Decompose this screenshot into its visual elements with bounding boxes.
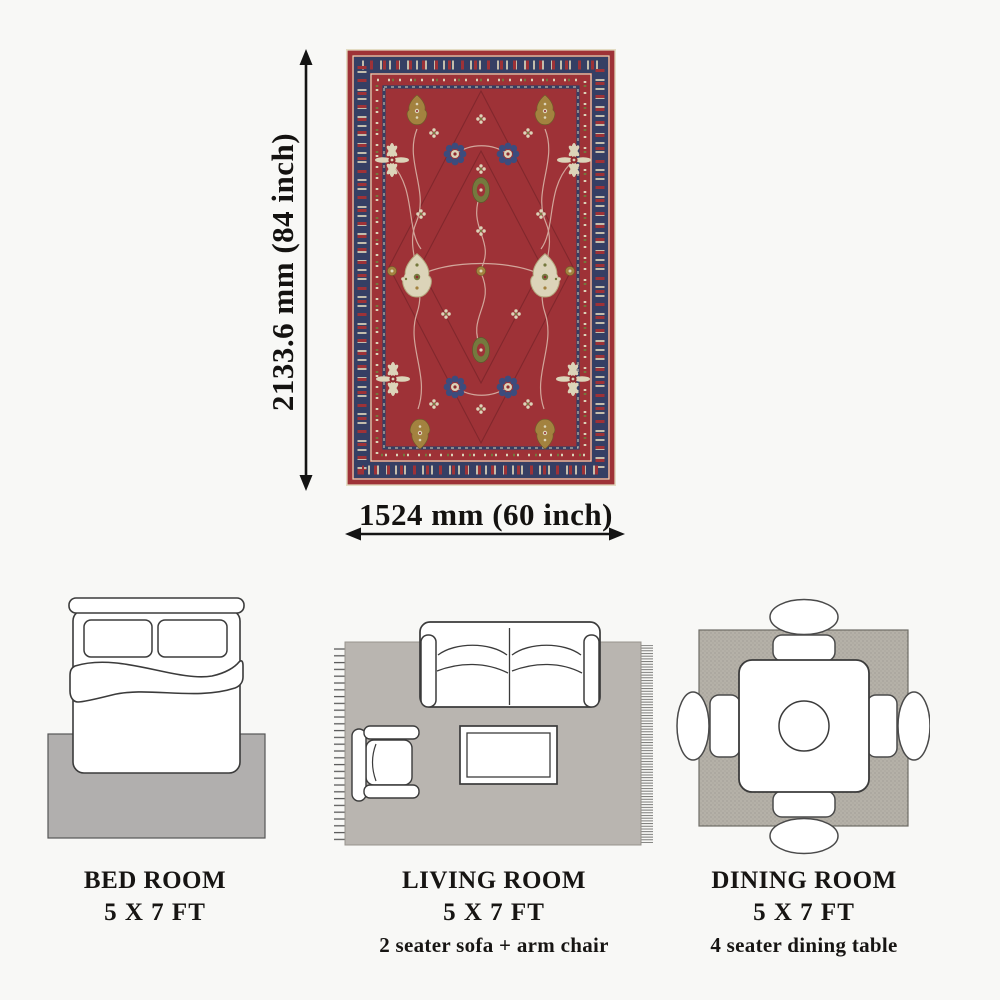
- armchair-icon: [352, 726, 419, 801]
- sofa-icon: [420, 622, 600, 707]
- rug-image: [346, 49, 616, 486]
- bedroom-label: BED ROOM 5 X 7 FT: [0, 866, 310, 928]
- canvas: 2133.6 mm (84 inch) 1524 mm (60 inch): [0, 0, 1000, 1000]
- bedroom-illustration: [40, 590, 275, 846]
- width-dimension-label: 1524 mm (60 inch): [359, 497, 613, 533]
- room-title: LIVING ROOM: [339, 866, 649, 896]
- room-size: 5 X 7 FT: [339, 898, 649, 928]
- dining-room-illustration: [670, 588, 930, 856]
- dining-table-icon: [739, 660, 869, 792]
- living-room-label: LIVING ROOM 5 X 7 FT 2 seater sofa + arm…: [339, 866, 649, 958]
- height-dimension-label: 2133.6 mm (84 inch): [265, 133, 301, 411]
- room-size: 5 X 7 FT: [649, 898, 959, 928]
- dining-room-label: DINING ROOM 5 X 7 FT 4 seater dining tab…: [649, 866, 959, 958]
- room-note: 2 seater sofa + arm chair: [339, 932, 649, 958]
- living-room-illustration: [330, 612, 660, 852]
- room-size: 5 X 7 FT: [0, 898, 310, 928]
- room-note: 4 seater dining table: [649, 932, 959, 958]
- coffee-table-icon: [460, 726, 557, 784]
- room-title: DINING ROOM: [649, 866, 959, 896]
- bed-icon: [69, 598, 244, 773]
- room-title: BED ROOM: [0, 866, 310, 896]
